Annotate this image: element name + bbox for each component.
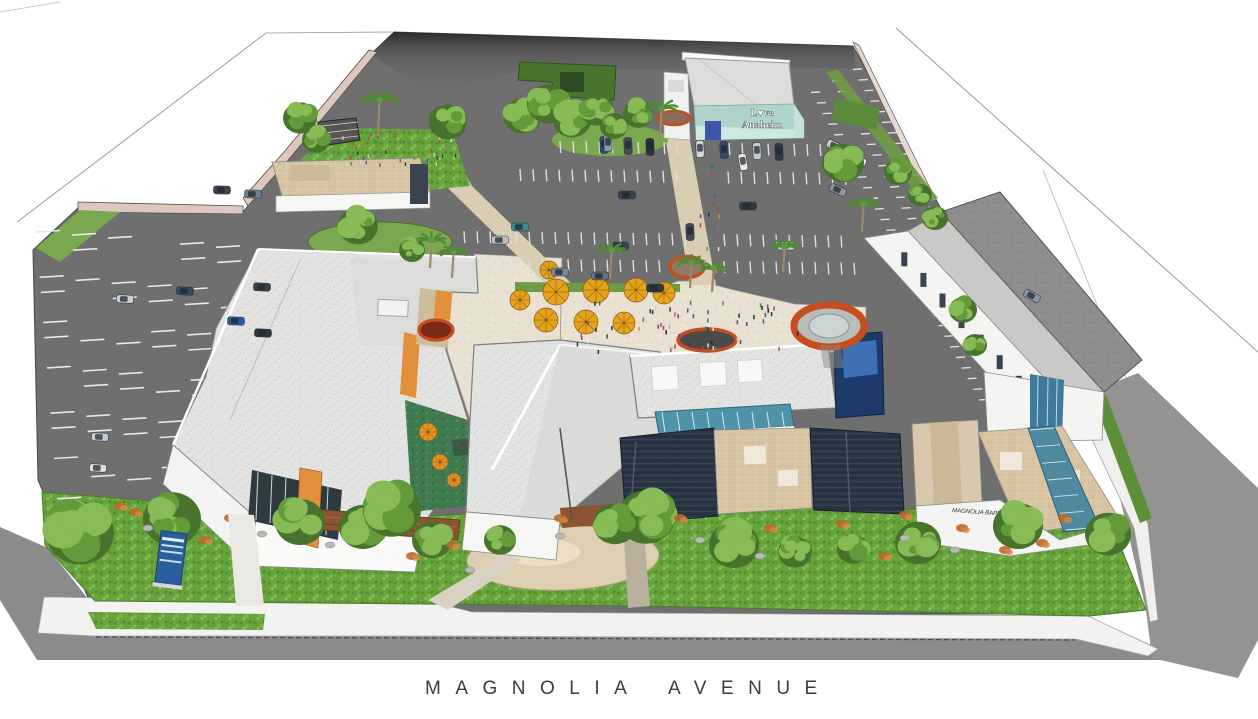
svg-text:Anaheim: Anaheim — [742, 120, 783, 131]
svg-text:L♥ve: L♥ve — [750, 108, 773, 119]
svg-text:MAGNOLIA: MAGNOLIA — [425, 678, 641, 699]
svg-text:AVENUE: AVENUE — [668, 678, 832, 699]
